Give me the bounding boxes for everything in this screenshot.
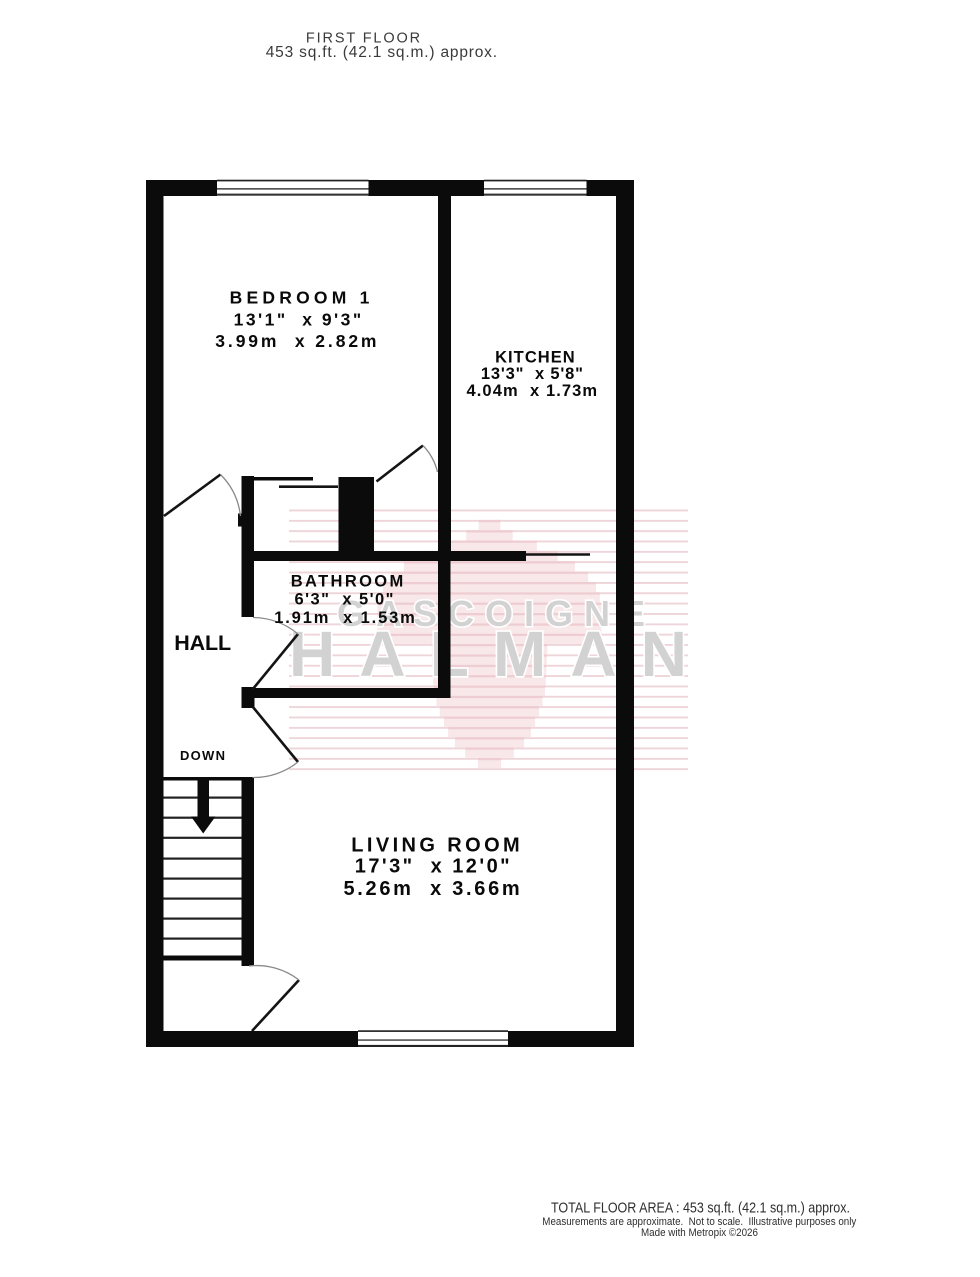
svg-text:BATHROOM: BATHROOM: [291, 572, 404, 590]
svg-text:HALL: HALL: [174, 631, 231, 655]
svg-text:13'3" x 5'8": 13'3" x 5'8": [481, 365, 583, 383]
svg-text:1.91m x 1.53m: 1.91m x 1.53m: [274, 609, 415, 627]
svg-text:Made with Metropix ©2026: Made with Metropix ©2026: [641, 1227, 758, 1239]
svg-text:DOWN: DOWN: [180, 748, 225, 763]
svg-text:3.99m x 2.82m: 3.99m x 2.82m: [215, 331, 376, 351]
svg-text:5.26m x 3.66m: 5.26m x 3.66m: [344, 878, 520, 900]
svg-text:TOTAL FLOOR AREA : 453 sq.ft.: TOTAL FLOOR AREA : 453 sq.ft. (42.1 sq.m…: [551, 1199, 850, 1216]
svg-text:453 sq.ft. (42.1 sq.m.) approx: 453 sq.ft. (42.1 sq.m.) approx.: [266, 44, 497, 61]
svg-text:4.04m x 1.73m: 4.04m x 1.73m: [467, 382, 598, 400]
svg-text:13'1" x 9'3": 13'1" x 9'3": [234, 309, 362, 329]
svg-text:17'3" x 12'0": 17'3" x 12'0": [355, 856, 510, 878]
